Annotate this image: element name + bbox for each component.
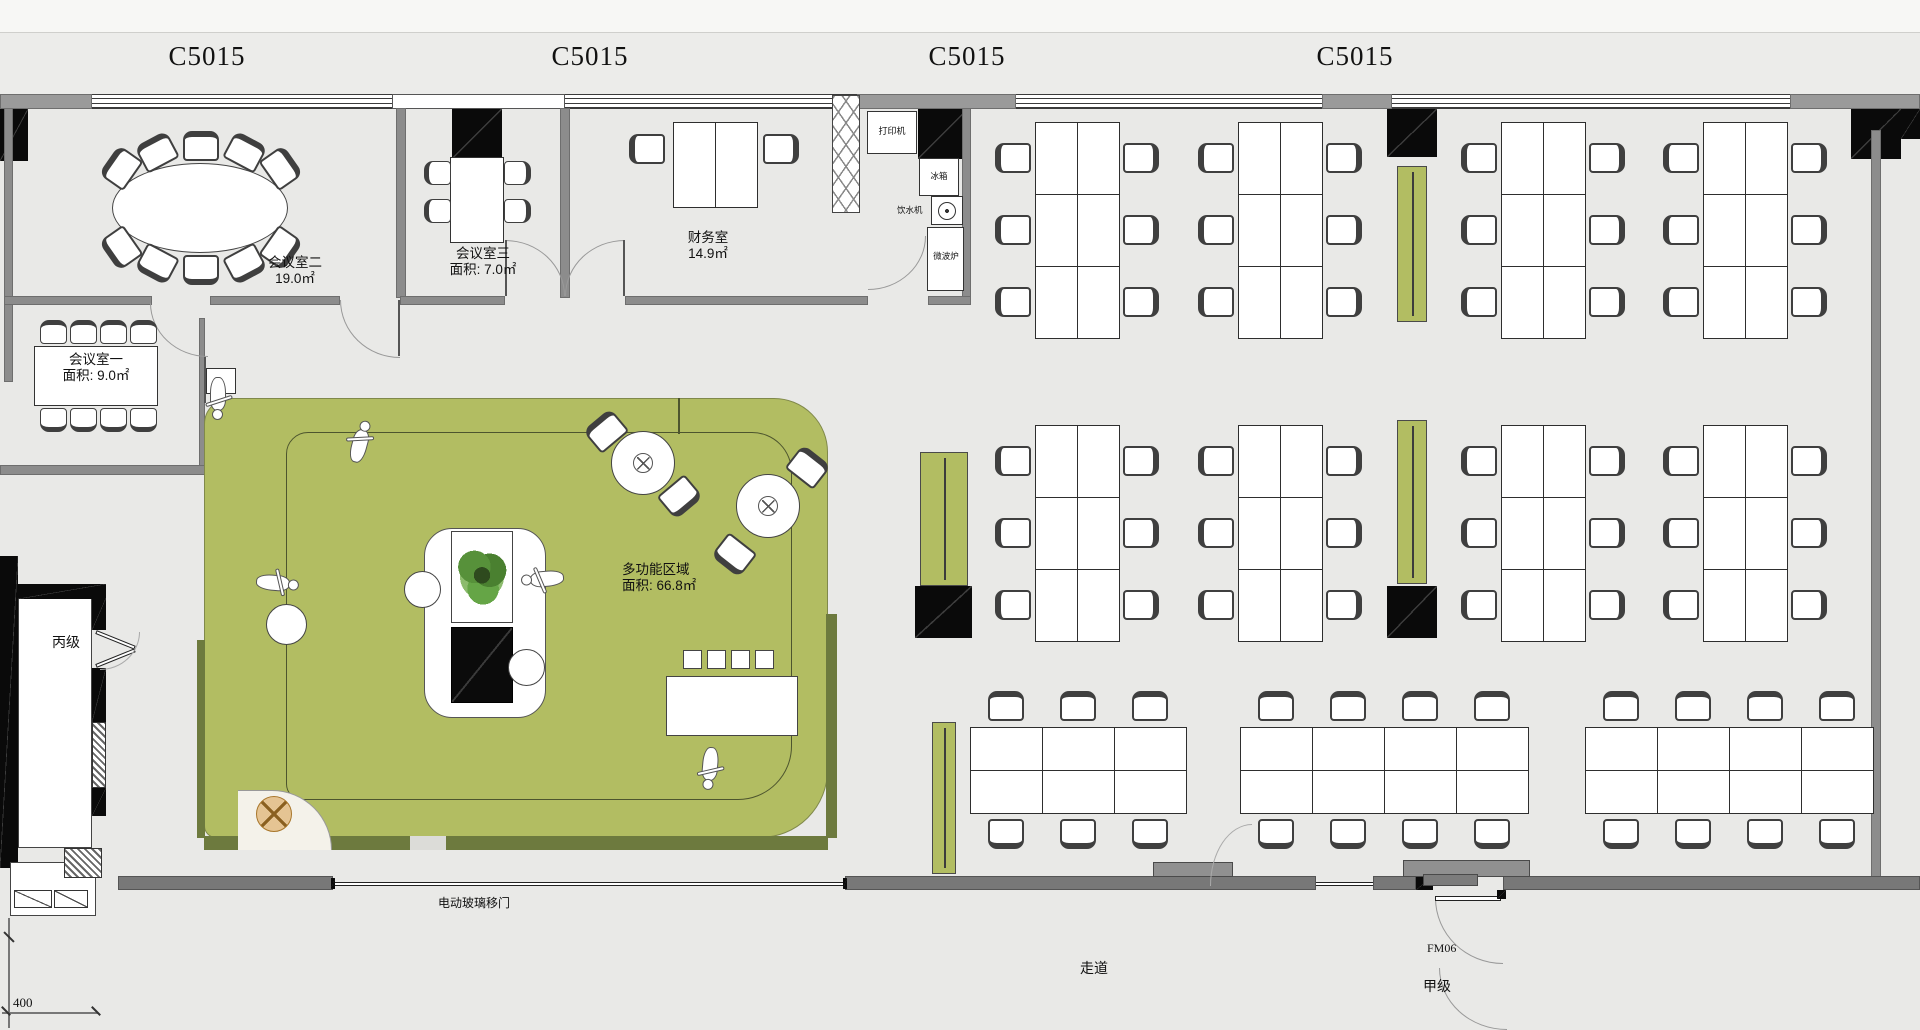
door-code-label: FM06: [1427, 941, 1456, 955]
chair: [995, 446, 1031, 476]
room-name: 会议室一: [63, 352, 130, 368]
desk: [1238, 497, 1281, 570]
stool-square: [683, 650, 702, 669]
chair: [1123, 143, 1159, 173]
hatch-block: [64, 848, 102, 878]
desk: [1238, 569, 1281, 642]
stool-square: [755, 650, 774, 669]
desk: [1745, 194, 1788, 267]
door-arc: [565, 240, 625, 296]
desk: [1501, 425, 1544, 498]
chair: [1589, 518, 1625, 548]
person-body: [210, 377, 226, 411]
chair: [995, 215, 1031, 245]
room-label-finance: 财务室 14.9㎡: [688, 230, 729, 262]
desk: [970, 727, 1043, 771]
desk: [1543, 569, 1586, 642]
chair: [1675, 691, 1711, 721]
chair: [1461, 518, 1497, 548]
olive-edge: [197, 640, 205, 838]
glass-sliding-door: [1316, 882, 1373, 886]
column: [1387, 109, 1437, 157]
chair: [1663, 143, 1699, 173]
chair: [1791, 590, 1827, 620]
fire-door-c-label: 丙级: [52, 634, 80, 651]
desk: [1077, 497, 1120, 570]
chair: [1675, 819, 1711, 849]
desk: [1729, 727, 1802, 771]
planter-strip: [1397, 166, 1427, 322]
lattice-cabinet: [832, 95, 860, 213]
media-table: [451, 627, 513, 703]
chair: [1326, 518, 1362, 548]
chair: [1123, 446, 1159, 476]
chair: [1330, 819, 1366, 849]
long-table: [666, 676, 798, 736]
desk: [1035, 266, 1078, 339]
chair: [1198, 590, 1234, 620]
desk: [1501, 122, 1544, 195]
chair: [995, 518, 1031, 548]
desk: [1280, 497, 1323, 570]
chair: [1198, 143, 1234, 173]
desk: [1501, 569, 1544, 642]
planter-strip: [1397, 420, 1427, 584]
rooms-bottom-wall: [4, 296, 152, 305]
stool-square: [707, 650, 726, 669]
chair: [100, 320, 127, 344]
floor-plan: C5015 C5015 C5015 C5015 会议室二 19.0㎡ 会议室三 …: [0, 0, 1920, 1030]
chair: [1589, 215, 1625, 245]
desk: [1501, 266, 1544, 339]
desk: [1280, 194, 1323, 267]
chair: [1402, 691, 1438, 721]
dimension-tick: [91, 1006, 101, 1016]
chair: [1123, 287, 1159, 317]
room-label-meeting3: 会议室三 面积: 7.0㎡: [450, 246, 517, 278]
desk: [1077, 569, 1120, 642]
room-area: 面积: 7.0㎡: [450, 262, 517, 278]
desk: [1077, 266, 1120, 339]
chair: [1461, 215, 1497, 245]
desk: [1745, 569, 1788, 642]
rooms-bottom-wall: [400, 296, 505, 305]
glass-sliding-door: [333, 882, 845, 886]
chair: [1474, 691, 1510, 721]
chair: [1198, 518, 1234, 548]
desk: [1456, 770, 1529, 814]
desk: [1280, 122, 1323, 195]
chair: [1326, 215, 1362, 245]
chair: [1258, 691, 1294, 721]
shaft-wall: [92, 668, 106, 722]
wall-segment: [857, 94, 1016, 109]
person-figure: [208, 374, 228, 420]
chair: [1402, 819, 1438, 849]
chair: [40, 320, 67, 344]
desk: [1238, 425, 1281, 498]
chair: [1791, 518, 1827, 548]
brace-box: [54, 890, 88, 908]
desk: [1042, 727, 1115, 771]
planter-strip: [920, 452, 968, 586]
bottom-wall: [1503, 876, 1920, 890]
glass-door-cap: [843, 878, 847, 889]
chair: [995, 287, 1031, 317]
desk: [1745, 122, 1788, 195]
chair: [1060, 691, 1096, 721]
dimension-line: [2, 1012, 98, 1014]
meeting1-bottom-wall: [0, 465, 205, 475]
desk: [1238, 122, 1281, 195]
person-head: [702, 778, 714, 790]
rooms-bottom-wall: [210, 296, 340, 305]
finance-desk: [673, 122, 716, 208]
chair: [1663, 590, 1699, 620]
desk: [1042, 770, 1115, 814]
chair: [1198, 287, 1234, 317]
desk: [1240, 770, 1313, 814]
chair: [1603, 819, 1639, 849]
room-area: 14.9㎡: [688, 246, 729, 262]
desk: [1035, 569, 1078, 642]
chair: [1791, 215, 1827, 245]
person-figure: [520, 567, 568, 591]
chair: [988, 819, 1024, 849]
water-dispenser-label: 饮水机: [897, 205, 923, 215]
desk: [1657, 727, 1730, 771]
desk: [1585, 727, 1658, 771]
finance-desk: [715, 122, 758, 208]
sliding-door-label: 电动玻璃移门: [438, 896, 510, 910]
desk: [1745, 425, 1788, 498]
olive-edge-gap: [410, 836, 446, 850]
desk: [1238, 266, 1281, 339]
desk: [1703, 194, 1746, 267]
door-leaf-line: [204, 357, 206, 403]
fire-door-a-label: 甲级: [1423, 978, 1451, 995]
rooms-bottom-wall: [928, 296, 971, 305]
left-wall: [4, 108, 13, 382]
chair: [1819, 691, 1855, 721]
chair: [1123, 590, 1159, 620]
desk: [1543, 194, 1586, 267]
chair: [1791, 143, 1827, 173]
chair: [1258, 819, 1294, 849]
desk: [1703, 122, 1746, 195]
bottom-wall: [1373, 876, 1416, 890]
chair: [1603, 691, 1639, 721]
room-label-multifunction: 多功能区域 面积: 66.8㎡: [622, 562, 696, 594]
chair: [1132, 691, 1168, 721]
chair: [1819, 819, 1855, 849]
chair: [1132, 819, 1168, 849]
shaft-wall: [18, 584, 106, 599]
chair: [70, 408, 97, 432]
chair: [1330, 691, 1366, 721]
axis-label-c5015-3: C5015: [928, 40, 1005, 72]
desk: [1703, 569, 1746, 642]
chair: [1326, 143, 1362, 173]
bottom-wall: [118, 876, 333, 890]
top-white-band: [0, 0, 1920, 32]
planter-strip: [932, 722, 956, 874]
rooms-bottom-wall: [625, 296, 868, 305]
chair: [1461, 287, 1497, 317]
column: [1901, 109, 1920, 139]
glass-door-cap: [331, 878, 335, 889]
desk: [1501, 194, 1544, 267]
chair: [1474, 819, 1510, 849]
oval-conference-table: [112, 163, 288, 253]
chair: [1663, 518, 1699, 548]
chair: [1123, 215, 1159, 245]
chair: [1326, 446, 1362, 476]
chair: [424, 199, 451, 223]
stool-square: [731, 650, 750, 669]
brace-box: [14, 890, 52, 908]
column: [1387, 586, 1437, 638]
chair: [1663, 446, 1699, 476]
chair: [504, 161, 531, 185]
person-head: [212, 409, 223, 420]
room-name: 会议室三: [450, 246, 517, 262]
desk: [1543, 425, 1586, 498]
desk: [1077, 122, 1120, 195]
door-leaf: [1435, 896, 1501, 901]
chair: [1198, 446, 1234, 476]
chair: [504, 199, 531, 223]
person-arm: [346, 436, 374, 441]
water-dispenser-box: [931, 196, 963, 225]
desk: [1543, 122, 1586, 195]
desk: [1703, 266, 1746, 339]
chair: [763, 134, 799, 164]
column: [918, 109, 968, 159]
axis-label-c5015-2: C5015: [551, 40, 628, 72]
shaft-wall: [92, 598, 106, 630]
chair: [988, 691, 1024, 721]
stool-round: [266, 604, 307, 645]
desk: [1312, 770, 1385, 814]
desk: [1801, 727, 1874, 771]
desk: [1703, 425, 1746, 498]
dimension-label: 400: [13, 995, 33, 1011]
tree-planter: [451, 531, 513, 623]
person-body: [255, 573, 290, 592]
stool-round: [404, 571, 441, 608]
person-head: [287, 579, 299, 591]
wall-segment: [1790, 94, 1920, 109]
door-leaf-line: [398, 300, 400, 356]
desk: [1035, 122, 1078, 195]
printer-label: 打印机: [878, 126, 905, 137]
desk: [1703, 497, 1746, 570]
room-area: 面积: 66.8㎡: [622, 578, 696, 594]
wall-bay: [392, 94, 565, 109]
shaft-wall-hatch: [92, 722, 106, 788]
chair: [1589, 287, 1625, 317]
desk: [1585, 770, 1658, 814]
desk: [1745, 497, 1788, 570]
shaft-wall: [92, 788, 106, 816]
desk: [1384, 770, 1457, 814]
desk: [1114, 770, 1187, 814]
desk: [1238, 194, 1281, 267]
chair: [424, 161, 451, 185]
desk: [1657, 770, 1730, 814]
tree-icon: [455, 535, 509, 619]
room-name: 会议室二: [268, 255, 322, 271]
room-area: 面积: 9.0㎡: [63, 368, 130, 384]
room-divider-wall: [560, 108, 570, 298]
chair: [1791, 287, 1827, 317]
shaft-wall: [0, 556, 18, 868]
room-name: 财务室: [688, 230, 729, 246]
chair: [1589, 590, 1625, 620]
desk: [1729, 770, 1802, 814]
column: [915, 586, 972, 638]
desk: [1114, 727, 1187, 771]
chair: [1747, 691, 1783, 721]
chair: [1326, 590, 1362, 620]
chair: [130, 408, 157, 432]
desk: [970, 770, 1043, 814]
wall-segment: [0, 94, 92, 109]
chair: [1123, 518, 1159, 548]
door-leaf-line: [623, 240, 625, 296]
desk: [1240, 727, 1313, 771]
chair: [1060, 819, 1096, 849]
door-arc: [100, 632, 140, 670]
door-arc: [340, 300, 400, 358]
axis-label-c5015-4: C5015: [1316, 40, 1393, 72]
meeting3-table: [450, 157, 504, 243]
column: [452, 109, 502, 159]
chair: [1747, 819, 1783, 849]
desk: [1280, 266, 1323, 339]
chair: [1589, 143, 1625, 173]
door-arc: [1210, 824, 1252, 886]
desk: [1035, 497, 1078, 570]
corridor-label: 走道: [1080, 960, 1108, 977]
chair: [183, 255, 219, 285]
round-table-center: [633, 453, 653, 473]
person-figure: [698, 743, 722, 791]
chair: [995, 590, 1031, 620]
chair: [629, 134, 665, 164]
chair: [1461, 590, 1497, 620]
chair: [995, 143, 1031, 173]
room-name: 多功能区域: [622, 562, 696, 578]
sliding-door-pocket-inner: [1423, 874, 1478, 886]
desk: [1501, 497, 1544, 570]
wall-segment: [1322, 94, 1392, 109]
chair: [100, 408, 127, 432]
room-divider-wall: [396, 108, 406, 298]
plant-deco: [256, 796, 292, 832]
desk: [1456, 727, 1529, 771]
desk: [1077, 425, 1120, 498]
chair: [1461, 143, 1497, 173]
room-label-meeting2: 会议室二 19.0㎡: [268, 255, 322, 287]
chair: [1791, 446, 1827, 476]
door-arc: [150, 303, 208, 357]
desk: [1280, 425, 1323, 498]
chair: [40, 408, 67, 432]
door-pivot: [1497, 890, 1506, 899]
walk-path-stub: [678, 398, 680, 434]
chair: [1461, 446, 1497, 476]
microwave-label: 微波炉: [933, 251, 959, 261]
fridge-label: 冰箱: [930, 171, 947, 181]
chair: [1663, 215, 1699, 245]
desk: [1035, 194, 1078, 267]
olive-edge: [826, 614, 837, 838]
person-body: [701, 746, 720, 781]
room-area: 19.0㎡: [268, 271, 322, 287]
desk: [1035, 425, 1078, 498]
axis-label-c5015-1: C5015: [168, 40, 245, 72]
door-arc: [868, 236, 926, 290]
desk: [1384, 727, 1457, 771]
desk: [1312, 727, 1385, 771]
desk: [1745, 266, 1788, 339]
chair: [1198, 215, 1234, 245]
chair: [70, 320, 97, 344]
chair: [130, 320, 157, 344]
desk: [1280, 569, 1323, 642]
round-table-center: [758, 496, 778, 516]
room-label-meeting1: 会议室一 面积: 9.0㎡: [63, 352, 130, 384]
desk: [1801, 770, 1874, 814]
person-figure: [252, 571, 300, 595]
desk: [1543, 497, 1586, 570]
chair: [1589, 446, 1625, 476]
chair: [183, 131, 219, 161]
stool-round: [508, 649, 545, 686]
desk: [1543, 266, 1586, 339]
chair: [1326, 287, 1362, 317]
chair: [1663, 287, 1699, 317]
desk: [1077, 194, 1120, 267]
